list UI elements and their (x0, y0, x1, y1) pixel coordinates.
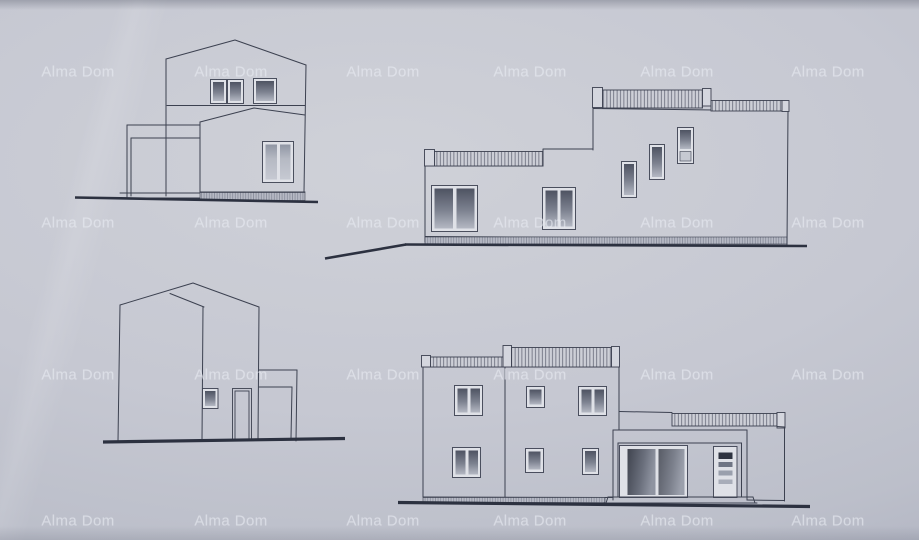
elevation-bottom-left (103, 283, 345, 442)
parapet-line (777, 427, 785, 428)
window (254, 79, 277, 104)
window (543, 188, 576, 230)
window (432, 186, 478, 232)
porch-frame (127, 125, 200, 197)
railing-post (777, 413, 785, 429)
ground-line (405, 245, 807, 247)
porch-frame (259, 370, 297, 441)
window (455, 386, 483, 416)
elevation-top-left (75, 40, 318, 202)
roof-railing (431, 357, 504, 367)
ground-slope-line (325, 245, 406, 259)
wall-line (118, 305, 120, 441)
elevation-bottom-right (398, 346, 810, 507)
roof-railing (711, 101, 782, 112)
railing-post (612, 347, 620, 368)
window (583, 449, 599, 475)
wall-line (258, 307, 259, 440)
window (622, 162, 637, 198)
roof-railing (435, 152, 544, 167)
railing-post (503, 346, 512, 368)
railing-post (782, 101, 789, 112)
window (453, 448, 481, 478)
gable-roof-line (166, 40, 306, 65)
window (211, 80, 227, 104)
elevation-drawings (0, 0, 919, 540)
roof-step-line (543, 149, 593, 166)
window (228, 80, 244, 104)
panel-door (714, 447, 738, 498)
window (678, 128, 694, 164)
railing-post (422, 356, 431, 368)
corner-line (202, 307, 203, 440)
window (203, 389, 219, 409)
window (526, 449, 544, 473)
plinth-band (425, 237, 787, 244)
lower-roof-line (200, 108, 305, 122)
window (650, 145, 665, 180)
roof-railing (603, 90, 703, 108)
window (579, 387, 607, 416)
sliding-glass-door (620, 446, 688, 498)
base-line (747, 500, 785, 501)
door (233, 389, 252, 441)
photographed-elevation-sheet: Alma DomAlma DomAlma DomAlma DomAlma Dom… (0, 0, 919, 540)
gable-roof-line (120, 283, 259, 307)
roof-step-line (619, 412, 672, 413)
wall-line (304, 65, 306, 192)
railing-post (703, 89, 712, 107)
ground-line (103, 439, 345, 443)
roof-railing (672, 414, 777, 427)
railing-post (425, 150, 435, 167)
elevation-top-right (325, 88, 807, 259)
window (263, 142, 294, 183)
gable-edge-line (170, 294, 204, 308)
window (527, 387, 545, 408)
wall-line (787, 111, 788, 245)
roof-railing (512, 348, 612, 368)
railing-post (593, 88, 603, 108)
